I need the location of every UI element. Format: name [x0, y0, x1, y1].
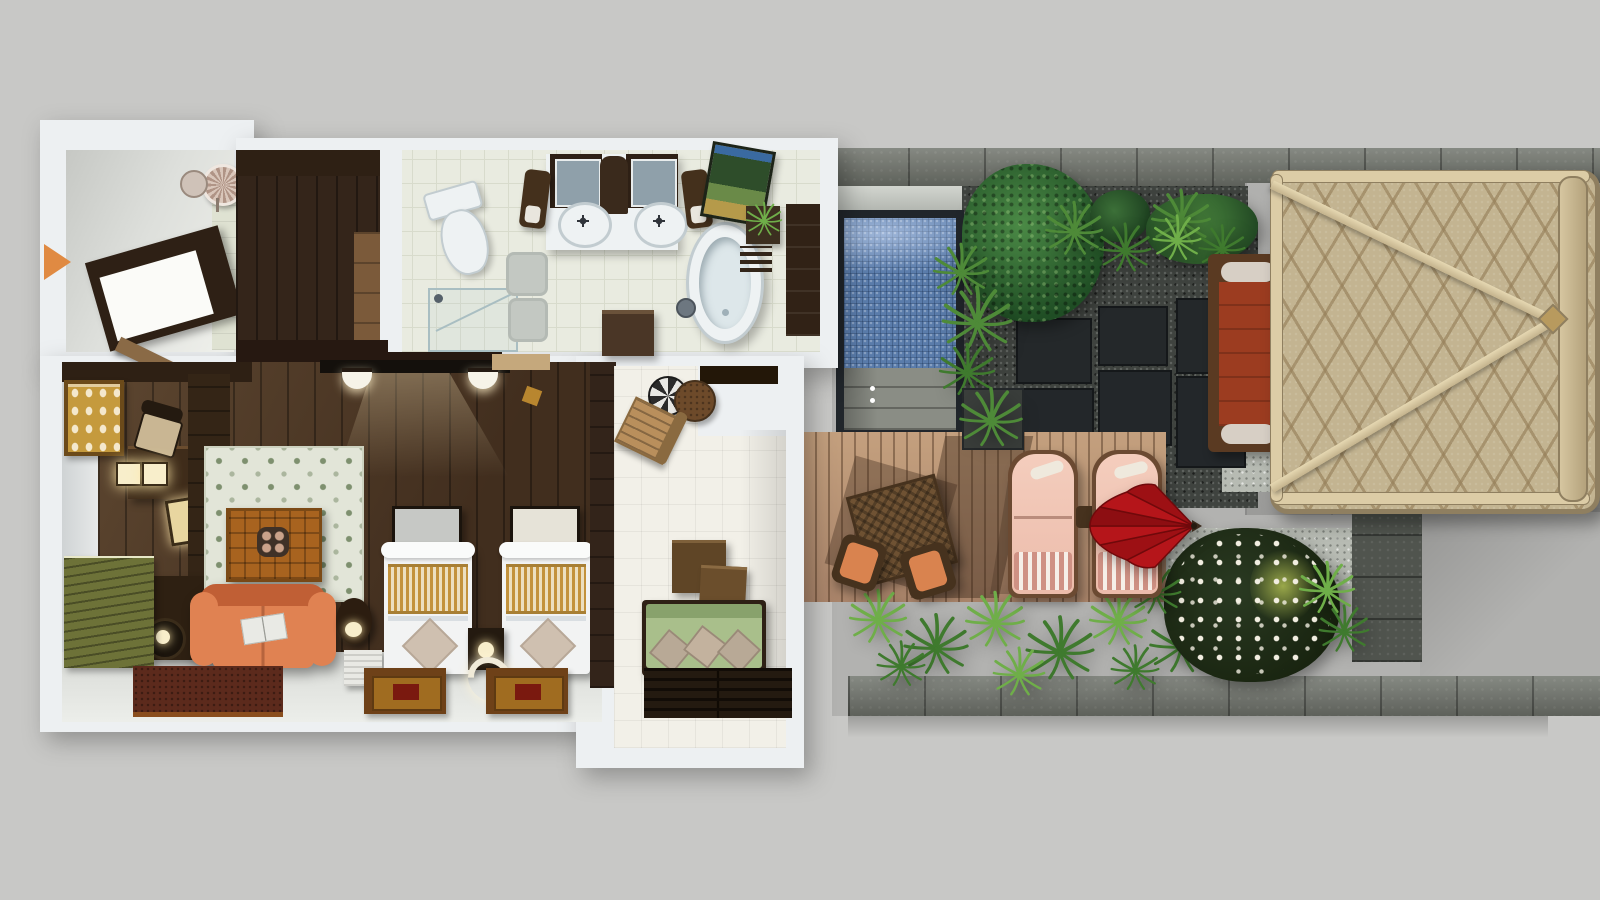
wall-lamp-glow [142, 462, 168, 486]
shower-door-line [436, 293, 512, 332]
linen-wardrobe [786, 204, 820, 336]
shower-glass [428, 288, 518, 352]
corridor-top-shelf [236, 150, 380, 176]
bed-body [384, 544, 472, 674]
bed-headboard-roll [381, 542, 475, 558]
lounge-ceiling-beam [700, 366, 778, 384]
bathroom-door-patch [492, 354, 550, 370]
bath-mat [508, 298, 548, 342]
foot-mat-base [486, 668, 568, 714]
bed-runner [506, 564, 586, 614]
room-corridor [236, 150, 380, 362]
drum-side-table [336, 598, 372, 644]
louvered-bench [64, 556, 154, 668]
foot-mat-center [393, 684, 419, 700]
room-bathroom [388, 150, 820, 352]
bed-pillow-diamond [520, 618, 577, 675]
lamp-glow [156, 630, 170, 644]
sink-faucet-icon [577, 215, 589, 227]
bed-pillow-diamond [402, 618, 459, 675]
bed-headboard-roll [499, 542, 593, 558]
bathtub-drain-icon [722, 309, 729, 316]
mirror-glass [555, 159, 601, 207]
gold-artwork [64, 380, 124, 456]
bed-body [502, 544, 590, 674]
toilet [420, 180, 500, 286]
foot-mat-base [364, 668, 446, 714]
corridor-door [354, 232, 380, 354]
sink-faucet-icon [653, 215, 665, 227]
ceiling-lamp-icon [180, 158, 236, 208]
bedroom-east-wall [590, 362, 616, 688]
mirror-glass [631, 159, 677, 207]
drum-lamp-glow [345, 622, 362, 637]
red-runner-rug [133, 666, 283, 717]
bathroom-partition [388, 150, 402, 352]
slatted-platform [644, 668, 792, 718]
shower-head-icon [434, 294, 443, 303]
vanity-mirror [626, 154, 678, 208]
potted-plant [744, 200, 784, 240]
vanity-center-cabinet [600, 156, 628, 214]
carved-coffee-table [226, 508, 322, 582]
vanity-mirror [550, 154, 602, 208]
lamp-rosette-small [180, 170, 208, 198]
room-lounge [614, 366, 786, 748]
green-daybed [642, 600, 766, 676]
storage-bench [602, 310, 654, 356]
bed-runner [388, 564, 468, 614]
vanity-sink [634, 202, 688, 248]
villa-building [0, 0, 1600, 900]
bathtub-faucet-icon [676, 298, 696, 318]
room-foyer [66, 150, 234, 352]
vanity-sink [558, 202, 612, 248]
towel-rack [740, 246, 772, 272]
room-bedroom [62, 362, 602, 722]
foot-mat [372, 676, 442, 711]
foot-mat [494, 676, 564, 711]
table-centerpiece [257, 527, 289, 557]
stool-towel [524, 205, 541, 224]
wall-lamp-glow [116, 462, 142, 486]
foot-mat-center [515, 684, 541, 700]
bath-mat [506, 252, 548, 296]
orange-sofa [190, 584, 336, 672]
floorplan-canvas [0, 0, 1600, 900]
